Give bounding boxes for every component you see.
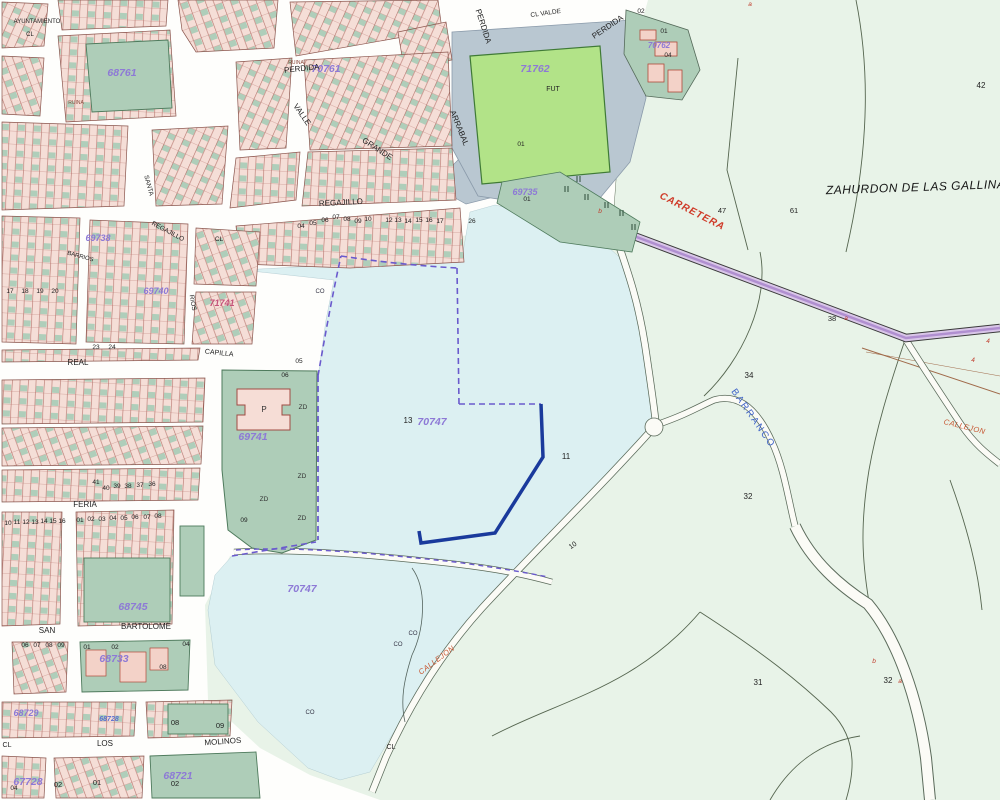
plot-number-03: 03 bbox=[98, 516, 106, 523]
map-mark-co: CO bbox=[394, 642, 403, 648]
plot-number-01: 01 bbox=[76, 517, 84, 524]
city-block bbox=[152, 126, 228, 206]
map-mark-co: CO bbox=[306, 710, 315, 716]
parcel-label-68733: 68733 bbox=[99, 653, 128, 665]
street-label-cl: CL bbox=[3, 742, 12, 749]
road-junction bbox=[645, 418, 663, 436]
map-mark-a: a bbox=[748, 1, 752, 8]
plot-number-07: 07 bbox=[33, 642, 41, 649]
plot-number-36: 36 bbox=[148, 481, 156, 488]
parcel-label-70762: 70762 bbox=[648, 41, 671, 50]
plot-number-11: 11 bbox=[14, 519, 21, 526]
plot-number-18: 18 bbox=[21, 288, 29, 295]
plot-number-08: 08 bbox=[343, 216, 351, 223]
plot-number-05: 05 bbox=[295, 358, 303, 365]
plot-number-10: 10 bbox=[364, 216, 372, 223]
parcel-label-70747: 70747 bbox=[417, 416, 447, 428]
city-block bbox=[12, 642, 68, 694]
map-mark-b: b bbox=[598, 208, 602, 215]
city-block bbox=[2, 56, 44, 116]
city-block bbox=[2, 378, 205, 424]
map-mark-a: a bbox=[898, 678, 902, 685]
city-block bbox=[2, 216, 80, 344]
map-mark-a: a bbox=[844, 315, 848, 322]
plot-number-04: 04 bbox=[664, 52, 672, 59]
street-label-feria: FERIA bbox=[73, 500, 97, 509]
plot-number-09: 09 bbox=[240, 517, 248, 524]
map-mark-co: CO bbox=[316, 289, 325, 295]
parcel-label-71762: 71762 bbox=[520, 63, 549, 75]
city-block bbox=[178, 0, 278, 52]
city-block bbox=[2, 468, 200, 502]
map-mark-fut: FUT bbox=[546, 86, 560, 93]
plot-number-01: 01 bbox=[517, 141, 525, 148]
parcel-label-68745: 68745 bbox=[118, 601, 147, 613]
plot-number-02: 02 bbox=[54, 780, 62, 789]
parcel-label-70747: 70747 bbox=[287, 583, 317, 595]
parcel-label-71741: 71741 bbox=[209, 298, 234, 308]
plot-number-06: 06 bbox=[131, 514, 139, 521]
plot-number-04: 04 bbox=[10, 785, 18, 792]
plot-number-24: 24 bbox=[108, 344, 116, 351]
plot-number-13: 13 bbox=[31, 519, 39, 526]
map-mark-b: b bbox=[872, 658, 876, 665]
plot-number-39: 39 bbox=[113, 483, 121, 490]
plot-number-09: 09 bbox=[57, 642, 65, 649]
plot-number-38: 38 bbox=[124, 483, 132, 490]
plot-number-01: 01 bbox=[93, 778, 101, 787]
plot-number-20: 20 bbox=[51, 288, 59, 295]
plot-number-15: 15 bbox=[415, 217, 423, 224]
plot-number-14: 14 bbox=[40, 518, 48, 525]
plot-number-06: 06 bbox=[281, 372, 289, 379]
parcel-label-68728: 68728 bbox=[99, 716, 119, 723]
city-block bbox=[2, 2, 48, 48]
plot-number-02: 02 bbox=[637, 8, 645, 15]
city-block bbox=[302, 148, 456, 206]
street-label-cl: CL bbox=[387, 744, 396, 751]
plot-number-32: 32 bbox=[884, 676, 893, 685]
plot-number-32: 32 bbox=[744, 492, 753, 501]
plot-number-04: 04 bbox=[297, 223, 305, 230]
plot-number-38: 38 bbox=[828, 314, 836, 323]
plot-number-05: 05 bbox=[120, 515, 128, 522]
city-block bbox=[54, 756, 144, 798]
parcel-label-69738: 69738 bbox=[85, 233, 110, 243]
parcel-label-69741: 69741 bbox=[238, 431, 267, 443]
parcel-label-69740: 69740 bbox=[143, 286, 168, 296]
plot-number-14: 14 bbox=[404, 218, 412, 225]
plot-number-47: 47 bbox=[718, 206, 726, 215]
plot-number-06: 06 bbox=[321, 217, 329, 224]
plot-number-08: 08 bbox=[159, 664, 167, 671]
street-label-cl: CL bbox=[26, 32, 34, 38]
map-mark-p: P bbox=[261, 405, 266, 414]
plot-number-23: 23 bbox=[92, 344, 100, 351]
map-mark-zd: ZD bbox=[260, 496, 269, 503]
plot-number-16: 16 bbox=[425, 217, 433, 224]
plot-number-42: 42 bbox=[977, 81, 986, 90]
city-block bbox=[2, 512, 62, 626]
map-mark-zd: ZD bbox=[298, 473, 307, 480]
map-mark-ruina: RUINA bbox=[288, 60, 304, 66]
plot-number-41: 41 bbox=[92, 479, 100, 486]
plot-number-34: 34 bbox=[745, 371, 754, 380]
city-block bbox=[2, 122, 128, 210]
cadastral-map: 6876170761717627076269735697386974071741… bbox=[0, 0, 1000, 800]
plot-number-15: 15 bbox=[49, 518, 57, 525]
plot-number-05: 05 bbox=[309, 220, 317, 227]
street-label-bartolome: BARTOLOME bbox=[121, 622, 171, 631]
map-canvas[interactable]: 6876170761717627076269735697386974071741… bbox=[0, 0, 1000, 800]
map-mark-zd: ZD bbox=[299, 404, 308, 411]
plot-number-02: 02 bbox=[111, 644, 119, 651]
plot-number-07: 07 bbox=[143, 514, 151, 521]
parcel-label-68761: 68761 bbox=[107, 67, 136, 79]
plot-number-01: 01 bbox=[83, 644, 91, 651]
plot-number-08: 08 bbox=[45, 642, 53, 649]
plot-number-11: 11 bbox=[562, 452, 571, 461]
street-label-ayuntamiento: AYUNTAMIENTO bbox=[14, 19, 61, 25]
street-label-cl: CL bbox=[215, 236, 224, 243]
plot-number-26: 26 bbox=[468, 218, 476, 225]
map-mark-4: 4 bbox=[986, 338, 990, 345]
map-mark-ruina: RUINA bbox=[68, 100, 84, 106]
city-block bbox=[2, 348, 200, 362]
plot-number-17: 17 bbox=[6, 288, 14, 295]
plot-number-02: 02 bbox=[171, 779, 179, 788]
map-mark-4: 4 bbox=[971, 357, 975, 364]
city-block bbox=[194, 228, 260, 286]
plot-number-37: 37 bbox=[136, 482, 144, 489]
parcel-label-67728: 67728 bbox=[13, 776, 42, 788]
plot-number-17: 17 bbox=[436, 218, 444, 225]
plot-number-13: 13 bbox=[404, 416, 413, 425]
plot-number-40: 40 bbox=[102, 485, 110, 492]
city-block bbox=[58, 0, 168, 30]
plot-number-08: 08 bbox=[171, 718, 179, 727]
street-label-san: SAN bbox=[39, 626, 56, 635]
plot-number-01: 01 bbox=[523, 196, 531, 203]
plot-number-01: 01 bbox=[660, 28, 668, 35]
plot-number-19: 19 bbox=[36, 288, 44, 295]
plot-number-61: 61 bbox=[790, 206, 798, 215]
plot-number-06: 06 bbox=[21, 642, 29, 649]
plot-number-04: 04 bbox=[109, 515, 117, 522]
plot-number-04: 04 bbox=[182, 641, 190, 648]
plot-number-09: 09 bbox=[354, 218, 362, 225]
city-block bbox=[230, 152, 300, 208]
plot-number-07: 07 bbox=[332, 214, 340, 221]
plot-number-02: 02 bbox=[87, 516, 95, 523]
plot-number-12: 12 bbox=[385, 217, 393, 224]
plot-number-09: 09 bbox=[216, 721, 224, 730]
parcel-label-68729: 68729 bbox=[13, 708, 38, 718]
plot-number-08: 08 bbox=[154, 513, 162, 520]
plot-number-12: 12 bbox=[22, 519, 30, 526]
map-mark-co: CO bbox=[409, 631, 418, 637]
street-label-los: LOS bbox=[97, 739, 113, 748]
plot-number-13: 13 bbox=[394, 217, 402, 224]
plot-number-31: 31 bbox=[754, 678, 763, 687]
map-mark-zd: ZD bbox=[298, 515, 307, 522]
city-block bbox=[2, 426, 203, 466]
plot-number-16: 16 bbox=[58, 518, 66, 525]
plot-number-10: 10 bbox=[4, 520, 12, 527]
street-label-real: REAL bbox=[68, 358, 89, 367]
